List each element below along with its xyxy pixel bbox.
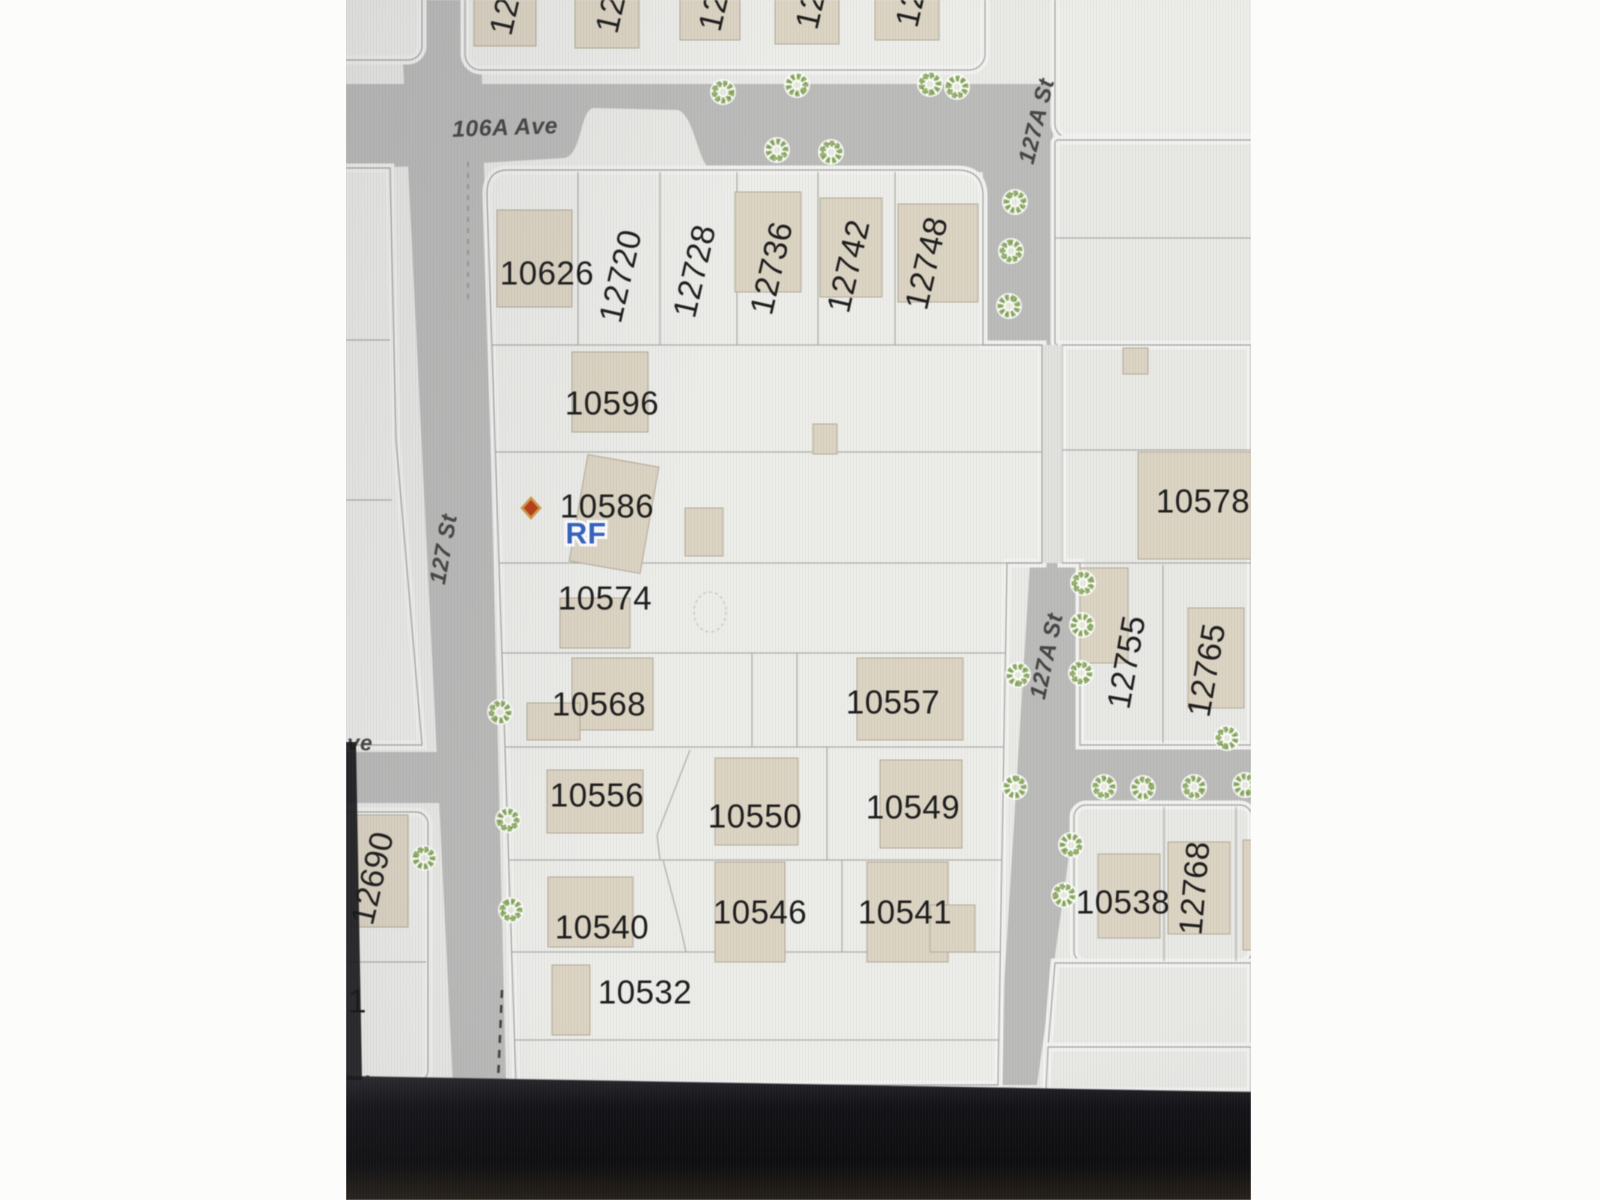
tree-icon	[495, 807, 521, 833]
tree-icon	[764, 137, 790, 163]
lot-label-10574: 10574	[558, 580, 652, 617]
tree-icon	[1051, 882, 1077, 908]
lot-label-10532: 10532	[598, 974, 692, 1011]
tree-icon	[784, 72, 810, 98]
tree-core	[1006, 303, 1012, 309]
tree-core	[1012, 199, 1018, 205]
tree-icon	[1002, 774, 1028, 800]
tree-core	[1015, 672, 1021, 678]
lot-label-10549: 10549	[866, 789, 960, 826]
tree-icon	[998, 238, 1024, 264]
screen-bezel	[346, 1076, 1251, 1200]
tree-core	[1140, 785, 1146, 791]
lot-label-10626: 10626	[500, 255, 594, 292]
building	[813, 424, 837, 454]
lot-label-10541: 10541	[858, 894, 952, 931]
tree-core	[1012, 784, 1018, 790]
tree-core	[505, 817, 511, 823]
tree-core	[1224, 735, 1230, 741]
tree-icon	[1058, 832, 1084, 858]
tree-icon	[1214, 725, 1240, 751]
tree-icon	[1002, 189, 1028, 215]
tree-core	[794, 82, 800, 88]
building	[552, 965, 590, 1035]
lot-label-10578: 10578	[1156, 483, 1250, 520]
tree-core	[1061, 892, 1067, 898]
block-halo	[1046, 1047, 1251, 1092]
tree-icon	[818, 139, 844, 165]
lot-label-10556: 10556	[550, 777, 644, 814]
lot-label-10538: 10538	[1076, 884, 1170, 921]
tree-core	[774, 147, 780, 153]
road-west-avenue-stub	[346, 752, 442, 803]
lot-label-10557: 10557	[846, 684, 940, 721]
tree-icon	[1130, 775, 1156, 801]
tree-core	[720, 89, 726, 95]
street-label-106a-ave: 106A Ave	[452, 112, 559, 142]
tree-icon	[1091, 774, 1117, 800]
tree-icon	[498, 897, 524, 923]
tree-core	[421, 855, 427, 861]
map-photo: 1062612720127281273612742127481059610586…	[346, 0, 1251, 1200]
tree-icon	[917, 71, 943, 97]
rf-listing-label: RF	[566, 518, 607, 551]
building	[1123, 348, 1148, 374]
tree-icon	[1069, 612, 1095, 638]
lot-label-10546: 10546	[713, 894, 807, 931]
tree-icon	[411, 845, 437, 871]
tree-icon	[1068, 660, 1094, 686]
lot-label-10568: 10568	[552, 686, 646, 723]
photographed-screen: 1062612720127281273612742127481059610586…	[0, 0, 1600, 1200]
tree-icon	[487, 699, 513, 725]
tree-icon	[710, 79, 736, 105]
tree-core	[508, 907, 514, 913]
tree-core	[954, 84, 960, 90]
building	[1243, 840, 1251, 950]
tree-core	[927, 81, 933, 87]
lot-label-10540: 10540	[555, 909, 649, 946]
tree-icon	[1181, 774, 1207, 800]
tree-core	[828, 149, 834, 155]
tree-core	[1008, 248, 1014, 254]
tree-core	[497, 709, 503, 715]
lot-label-10596: 10596	[565, 385, 659, 422]
parcel-map: 1062612720127281273612742127481059610586…	[346, 0, 1251, 1200]
tree-core	[1078, 670, 1084, 676]
block-halo	[1055, 0, 1251, 138]
block-halo	[1048, 963, 1251, 1047]
tree-core	[1079, 622, 1085, 628]
block-halo	[1055, 140, 1251, 345]
tree-icon	[996, 293, 1022, 319]
tree-core	[1068, 842, 1074, 848]
block-halo	[346, 0, 422, 60]
tree-icon	[1070, 570, 1096, 596]
building	[685, 508, 723, 556]
tree-core	[1242, 782, 1248, 788]
lot-label-10550: 10550	[708, 798, 802, 835]
tree-core	[1101, 784, 1107, 790]
tree-core	[1080, 580, 1086, 586]
tree-icon	[944, 74, 970, 100]
lane	[1042, 345, 1062, 563]
tree-core	[1191, 784, 1197, 790]
